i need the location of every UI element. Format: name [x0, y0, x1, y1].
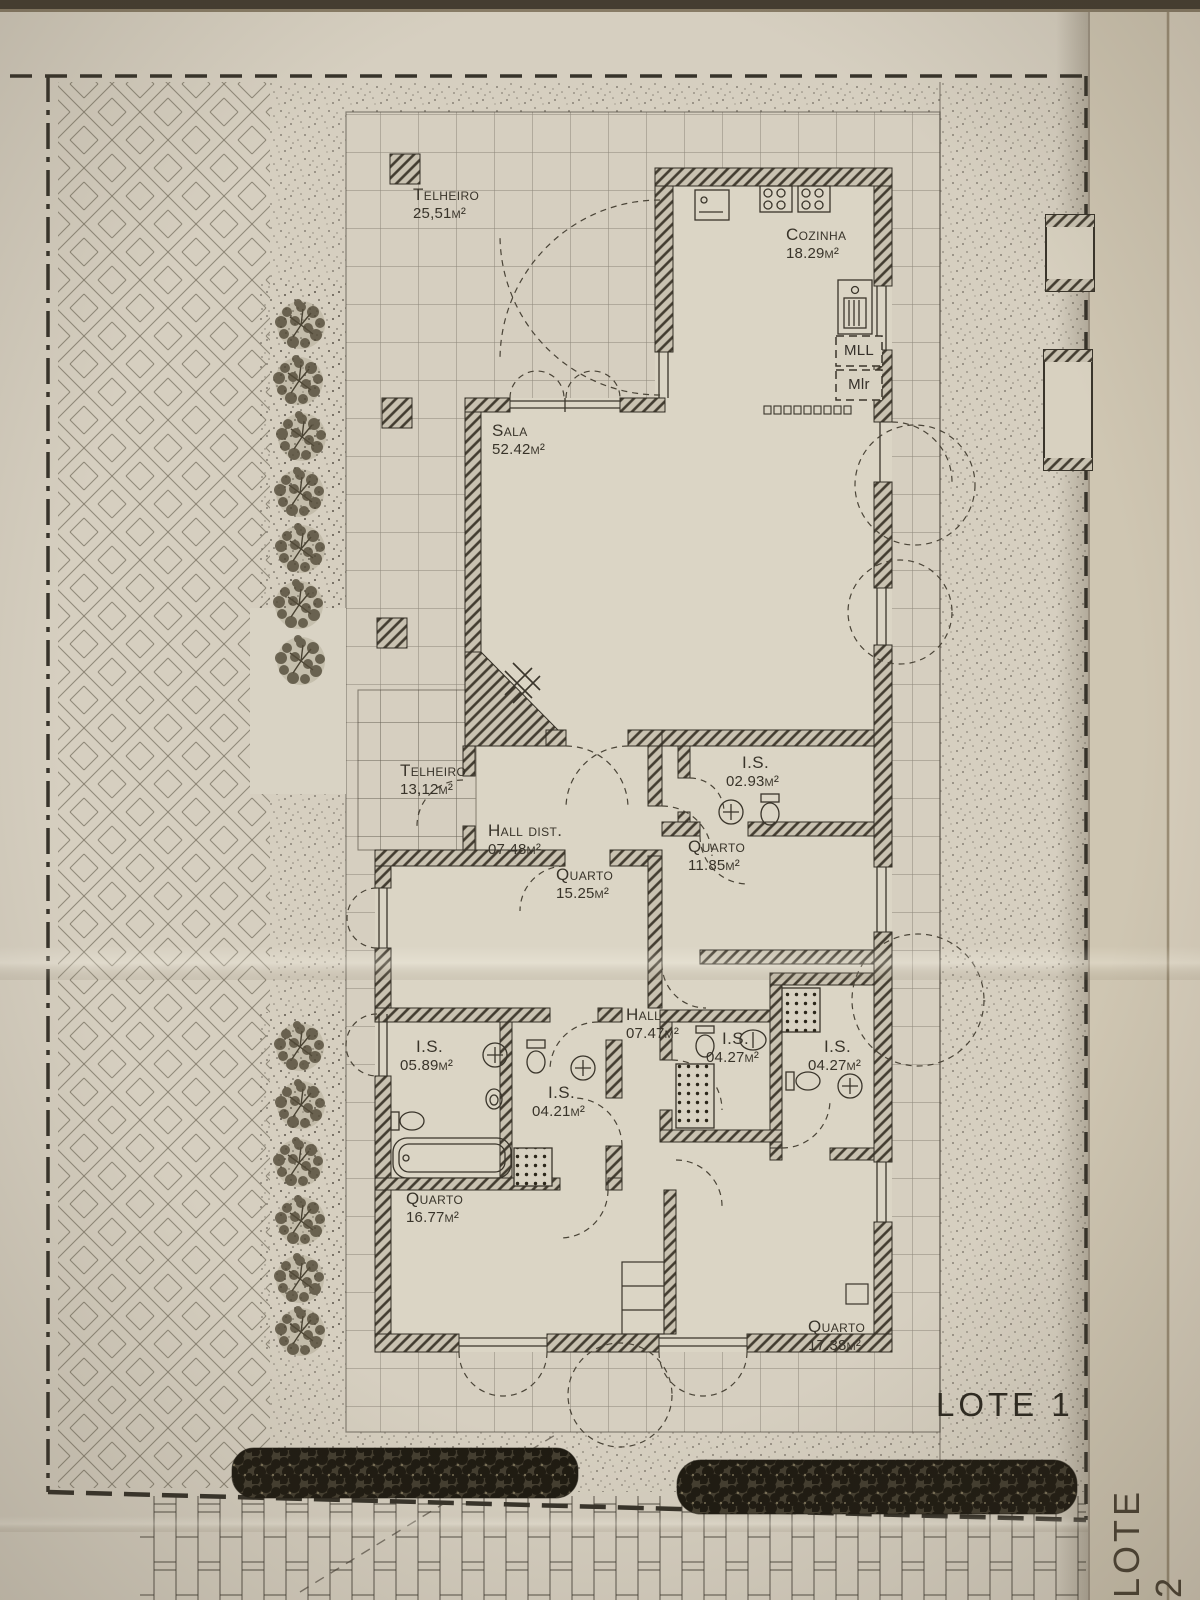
room-label-cozinha: Cozinha 18.29m² — [786, 224, 846, 264]
room-label-is-0589: I.S. 05.89m² — [400, 1036, 453, 1076]
floor-plan-drawing — [0, 0, 1200, 1600]
room-label-quarto-1677: Quarto 16.77m² — [406, 1188, 463, 1228]
appliance-label-mlr: Mlr — [836, 376, 882, 393]
room-label-quarto-1185: Quarto 11.85m² — [688, 836, 745, 876]
room-label-is-0427b: I.S. 04.27m² — [808, 1036, 861, 1076]
room-label-telheiro-top: Telheiro 25,51m² — [413, 184, 479, 224]
appliance-label-mll: MLL — [836, 342, 882, 359]
room-label-is-0421: I.S. 04.21m² — [532, 1082, 585, 1122]
scanned-floor-plan-photo: Telheiro 25,51m² Cozinha 18.29m² Sala 52… — [0, 0, 1200, 1600]
room-label-telheiro-porch: Telheiro 13,12m² — [400, 760, 466, 800]
lot-label-lote2: LOTE 2 — [1106, 1488, 1190, 1598]
room-label-quarto-1525: Quarto 15.25m² — [556, 864, 613, 904]
room-label-is-0427a: I.S. 04.27m² — [706, 1028, 759, 1068]
room-label-hall: Hall 07.47m² — [626, 1004, 679, 1044]
room-label-quarto-1738: Quarto 17.38m² — [808, 1316, 865, 1356]
room-label-sala: Sala 52.42m² — [492, 420, 545, 460]
room-label-hall-dist: Hall dist. 07.48m² — [488, 820, 562, 860]
room-label-is-0293: I.S. 02.93m² — [726, 752, 779, 792]
photo-vignette — [0, 0, 1200, 1600]
lot-label-lote1: LOTE 1 — [936, 1386, 1074, 1424]
